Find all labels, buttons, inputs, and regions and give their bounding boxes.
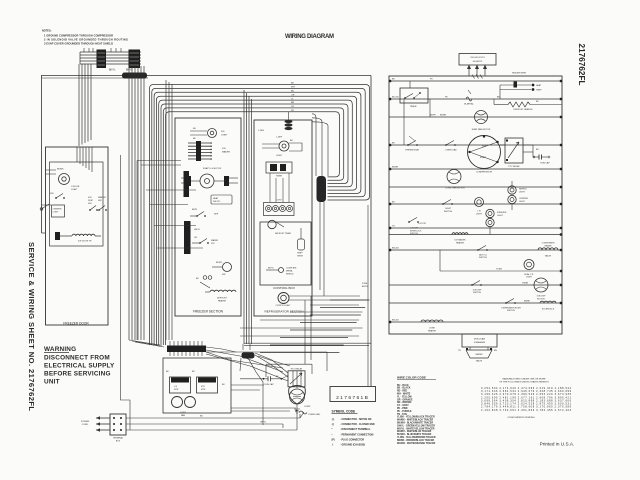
svg-text:OVERLOAD: OVERLOAD: [445, 149, 457, 152]
svg-text:GN/YL: GN/YL: [194, 229, 201, 231]
svg-text:DISP: DISP: [88, 200, 94, 202]
svg-text:CRISPER: CRISPER: [53, 209, 62, 211]
svg-text:3 EVAP COVER GROUNDED THROUGH: 3 EVAP COVER GROUNDED THROUGH HEAT SHIEL…: [44, 41, 113, 45]
svg-text:BI MTL: BI MTL: [216, 262, 224, 264]
svg-text:GN/YL: GN/YL: [260, 422, 267, 424]
svg-text:UNIT: UNIT: [44, 378, 60, 385]
svg-text:L/DOOR: L/DOOR: [71, 186, 80, 188]
svg-text:YL/BK - YELLOW/BLACK TRACER: YL/BK - YELLOW/BLACK TRACER: [397, 416, 435, 419]
svg-text:YL/BN - YELLOW/BROWN TRACER: YL/BN - YELLOW/BROWN TRACER: [397, 436, 436, 439]
svg-text:- PLUG CONNECTOR: - PLUG CONNECTOR: [340, 438, 364, 441]
svg-text:SWITCH: SWITCH: [473, 292, 481, 294]
svg-text:L-DOOR: L-DOOR: [410, 228, 418, 230]
svg-text:ICE DISP: ICE DISP: [473, 289, 482, 291]
svg-text:BK/PK: BK/PK: [430, 115, 437, 117]
svg-text:MODULAR: MODULAR: [474, 338, 485, 341]
svg-text:SWITCH: SWITCH: [507, 310, 515, 312]
svg-text:BEFORE SERVICING: BEFORE SERVICING: [44, 370, 111, 377]
svg-text:CORD: CORD: [82, 424, 89, 426]
svg-text:LIGHT: LIGHT: [526, 277, 533, 279]
svg-text:LIGHT: LIGHT: [497, 215, 504, 217]
svg-text:BN-250: BN-250: [392, 320, 400, 322]
svg-text:SOLENOID-S: SOLENOID-S: [542, 309, 555, 311]
svg-text:RD - RED: RD - RED: [397, 391, 408, 393]
svg-text:BK - BLACK: BK - BLACK: [397, 387, 411, 390]
svg-text:ZONE: ZONE: [429, 328, 435, 330]
svg-text:SWITCH: SWITCH: [479, 257, 487, 259]
svg-text:ZONE: ZONE: [362, 283, 368, 285]
svg-text:BK-250: BK-250: [392, 97, 400, 99]
svg-text:PTC RELAY: PTC RELAY: [291, 367, 303, 370]
svg-text:TERMINAL: TERMINAL: [113, 437, 124, 440]
svg-text:RUN CAP: RUN CAP: [540, 162, 550, 165]
svg-text:- GROUND (CHASSIS): - GROUND (CHASSIS): [340, 444, 365, 447]
svg-text:GY: GY: [291, 106, 295, 108]
svg-text:TIMER: TIMER: [276, 176, 283, 178]
svg-text:POWER: POWER: [81, 421, 90, 423]
svg-text:- CONNECTOR - SETON ON: - CONNECTOR - SETON ON: [340, 418, 372, 421]
svg-text:GN/YL - GREEN/YELLOW TRACER: GN/YL - GREEN/YELLOW TRACER: [397, 424, 435, 427]
svg-text:MTR: MTR: [174, 389, 179, 391]
svg-text:2176762FL: 2176762FL: [577, 44, 586, 86]
svg-text:WH/BK - WHITE/BLACK TRACER: WH/BK - WHITE/BLACK TRACER: [397, 419, 433, 422]
svg-text:BU: BU: [193, 128, 196, 130]
svg-text:COMP: COMP: [304, 406, 311, 408]
svg-text:'EVAP' D & MOTOR: 'EVAP' D & MOTOR: [203, 167, 222, 170]
svg-text:BR: BR: [291, 102, 294, 104]
svg-text:DEF: DEF: [214, 214, 219, 216]
svg-text:ICE: ICE: [222, 148, 226, 150]
svg-text:BK/YL: BK/YL: [109, 70, 116, 72]
svg-text:TN - TAN: TN - TAN: [397, 413, 407, 416]
svg-text:WIRE COLOR CODE: WIRE COLOR CODE: [397, 376, 426, 380]
svg-text:Printed in U.S.A.: Printed in U.S.A.: [540, 442, 575, 447]
svg-text:COMP BIN: COMP BIN: [286, 268, 297, 270]
svg-text:F/S: F/S: [221, 131, 225, 133]
svg-text:DUAL CTL: DUAL CTL: [524, 273, 534, 276]
svg-text:MANUFACTURED UNDER ONE OR: MANUFACTURED UNDER ONE OR MORE: [502, 378, 546, 381]
svg-text:1 GROUND COMPRESSOR THROUGH C: 1 GROUND COMPRESSOR THROUGH COMPRESSOR: [44, 33, 113, 37]
svg-text:PK - PINK: PK - PINK: [397, 408, 408, 410]
svg-text:VALVE: VALVE: [545, 255, 552, 258]
svg-text:(P): (P): [332, 438, 335, 441]
svg-text:METAL: METAL: [286, 270, 294, 273]
svg-text:WATER: WATER: [211, 239, 219, 242]
svg-text:LIGHT: LIGHT: [276, 155, 283, 157]
svg-text:BN/BK: BN/BK: [524, 301, 531, 303]
svg-text:LIGHT: LIGHT: [476, 214, 483, 216]
svg-text:PTC RELAY: PTC RELAY: [508, 165, 520, 168]
svg-text:LIGHT: LIGHT: [71, 189, 78, 191]
svg-text:YL - YELLOW: YL - YELLOW: [397, 396, 413, 398]
svg-text:WH: WH: [291, 87, 295, 89]
svg-text:BI-METAL: BI-METAL: [464, 103, 474, 106]
svg-text:ICEMAKER: ICEMAKER: [474, 341, 486, 344]
svg-text:TERM: TERM: [297, 256, 303, 258]
svg-text:WH - WHITE: WH - WHITE: [397, 394, 411, 396]
svg-text:BOX: BOX: [116, 440, 121, 442]
svg-text:ICE DOOR HT: ICE DOOR HT: [78, 241, 92, 243]
svg-text:ICE DISP: ICE DISP: [537, 296, 546, 298]
svg-text:TEMP: TEMP: [536, 90, 542, 92]
svg-text:BK/BN: BK/BN: [392, 167, 399, 169]
svg-text:-)(: -)(: [332, 423, 335, 426]
svg-text:THERMOSTAT: THERMOSTAT: [405, 149, 420, 152]
svg-text:ELECTRICAL SUPPLY: ELECTRICAL SUPPLY: [44, 362, 115, 369]
svg-text:GY - GRAY: GY - GRAY: [397, 404, 409, 407]
svg-text:MOTOR: MOTOR: [537, 298, 545, 300]
svg-text:CONT: CONT: [53, 212, 59, 214]
svg-text:220-240 VOLTS: 220-240 VOLTS: [470, 57, 485, 59]
svg-text:L-DOOR: L-DOOR: [418, 223, 426, 225]
svg-text:WH/OR - WHITE/ORANGE TRACER: WH/OR - WHITE/ORANGE TRACER: [397, 442, 436, 445]
svg-text:LIGHT: LIGHT: [519, 201, 526, 203]
svg-text:WH/BU - WHITE/BLUE TRACER: WH/BU - WHITE/BLUE TRACER: [397, 430, 432, 433]
svg-text:RUN: RUN: [482, 146, 487, 148]
svg-text:LIGHT: LIGHT: [221, 134, 228, 136]
svg-text:ICE: ICE: [88, 197, 92, 199]
svg-text:COMPRESSOR: COMPRESSOR: [476, 172, 492, 174]
svg-text:FREEZER SECTION: FREEZER SECTION: [193, 310, 224, 314]
svg-text:OTHER PATENTS PENDING: OTHER PATENTS PENDING: [507, 416, 535, 419]
svg-text:MTR: MTR: [201, 389, 206, 391]
svg-text:CONT: CONT: [180, 412, 187, 414]
svg-text:- CONNECTOR - CLOSED END: - CONNECTOR - CLOSED END: [340, 423, 375, 426]
svg-text:SW: SW: [222, 274, 225, 276]
svg-text:OF THE FOLLOWING UNITED ST: OF THE FOLLOWING UNITED STATES PATENTS: [499, 380, 549, 383]
svg-text:60 HERTZ: 60 HERTZ: [473, 61, 483, 63]
svg-text:HEAT: HEAT: [213, 197, 219, 200]
svg-text:OR: OR: [291, 94, 295, 96]
svg-text:SWITCH: SWITCH: [410, 233, 418, 235]
svg-text:L-DEF: L-DEF: [258, 130, 265, 132]
svg-text:SHIELD: SHIELD: [286, 274, 294, 276]
svg-text:OVERLOAD: OVERLOAD: [308, 413, 321, 416]
svg-text:TEMP: TEMP: [297, 253, 303, 255]
svg-text:-)|-: -)|-: [332, 418, 335, 421]
svg-text:DISPENSER/CRUSH: DISPENSER/CRUSH: [501, 307, 521, 309]
svg-text:HEATER: HEATER: [218, 300, 227, 303]
svg-text:M R: M R: [201, 386, 205, 388]
svg-text:REFR/G: REFR/G: [519, 189, 527, 191]
svg-text:TIMER: TIMER: [410, 106, 417, 108]
svg-text:BU/BK: BU/BK: [57, 169, 64, 171]
svg-text:- DISCONNECT TERMINAL: - DISCONNECT TERMINAL: [340, 428, 371, 431]
svg-text:FAN: FAN: [181, 414, 186, 417]
svg-text:MAKER: MAKER: [222, 150, 230, 153]
svg-text:OR: OR: [194, 237, 198, 239]
svg-text:WATER: WATER: [545, 244, 553, 247]
svg-text:NOTES:: NOTES:: [42, 30, 52, 33]
svg-text:DEFROST TIMER: DEFROST TIMER: [275, 233, 292, 235]
svg-text:CONTROL BOX: CONTROL BOX: [273, 286, 295, 290]
svg-text:OR - ORANGE: OR - ORANGE: [397, 398, 413, 401]
svg-text:HEATER: HEATER: [456, 241, 465, 244]
svg-text:HEAT: HEAT: [536, 84, 542, 87]
svg-text:BK/YL: BK/YL: [268, 268, 275, 270]
svg-text:2 IN SOLENOID VALVE GROUNDED: 2 IN SOLENOID VALVE GROUNDED THROUGH ROU…: [44, 37, 128, 41]
svg-text:YL/BN: YL/BN: [496, 269, 502, 271]
svg-text:SWITCH: SWITCH: [444, 211, 453, 213]
svg-text:LIGHT: LIGHT: [445, 208, 452, 210]
svg-text:RUN CAP: RUN CAP: [264, 383, 274, 386]
svg-text:CRISPER: CRISPER: [519, 198, 528, 200]
svg-text:CR'SP'R LIGHT: CR'SP'R LIGHT: [276, 305, 291, 307]
svg-text:CONT: CONT: [276, 200, 282, 202]
svg-text:WIRING DIAGRAM: WIRING DIAGRAM: [285, 34, 334, 40]
svg-text:L-DEF: L-DEF: [276, 137, 283, 139]
svg-text:BU: BU: [291, 91, 294, 93]
svg-text:WATER: WATER: [476, 353, 484, 356]
svg-text:2,162,848 3,762,691 3,391,833: 2,162,848 3,762,691 3,391,833 3,784,455 …: [481, 408, 572, 412]
svg-text:FREEZER DOOR: FREEZER DOOR: [63, 322, 89, 326]
svg-text:SERVICE & WIRING SHEET NO.: SERVICE & WIRING SHEET NO. 2176762FL: [27, 242, 36, 411]
svg-text:BN - BROWN: BN - BROWN: [397, 402, 412, 404]
svg-text:TN/BN: TN/BN: [522, 283, 529, 285]
svg-text:WATER: WATER: [98, 196, 106, 199]
svg-text:WARNING: WARNING: [44, 346, 76, 353]
svg-text:L N: L N: [477, 211, 481, 213]
svg-text:COND. FAN MOTOR: COND. FAN MOTOR: [445, 187, 465, 190]
svg-text:BK/BN: BK/BN: [440, 115, 447, 117]
svg-text:2 1 7 6 7 6 1 B: 2 1 7 6 7 6 1 B: [336, 395, 368, 401]
svg-text:BU/WH - BLUE/WHITE TRACER: BU/WH - BLUE/WHITE TRACER: [397, 433, 432, 436]
svg-text:SYMBOL CODE: SYMBOL CODE: [332, 410, 356, 414]
svg-text:BK/N: BK/N: [192, 209, 197, 211]
svg-text:DEFROST HEATER: DEFROST HEATER: [514, 108, 533, 111]
svg-text:HEATER: HEATER: [428, 329, 437, 332]
svg-text:REFRIGERATOR SECTION: REFRIGERATOR SECTION: [265, 310, 304, 314]
svg-text:INTERLOCK: INTERLOCK: [410, 230, 422, 232]
svg-text:BK/WH - BLACK/WHITE TRACER: BK/WH - BLACK/WHITE TRACER: [397, 422, 433, 425]
svg-text:ICE MAKER: ICE MAKER: [454, 239, 466, 242]
svg-text:CONDENSER: CONDENSER: [542, 243, 555, 245]
svg-text:HIDDEN WIRE: HIDDEN WIRE: [512, 73, 527, 75]
svg-text:BN/BK - BROWN/BLACK TRACER: BN/BK - BROWN/BLACK TRACER: [397, 439, 434, 442]
svg-text:BU - BLUE: BU - BLUE: [397, 385, 409, 387]
svg-text:EVAP. FAN MOTOR: EVAP. FAN MOTOR: [472, 128, 491, 131]
svg-text:FREEZER: FREEZER: [497, 212, 507, 214]
svg-text:AUTO &: AUTO &: [479, 253, 487, 256]
svg-text:PU - PURPLE: PU - PURPLE: [397, 411, 412, 413]
svg-text:BN-250: BN-250: [392, 248, 400, 250]
svg-text:VALVE: VALVE: [476, 360, 483, 363]
svg-text:- PERMANENT CONNECTION: - PERMANENT CONNECTION: [340, 433, 374, 436]
svg-text:START: START: [480, 156, 487, 159]
svg-text:BK/250: BK/250: [362, 286, 368, 288]
svg-text:LIGHT: LIGHT: [519, 192, 526, 194]
svg-text:SW-CTL: SW-CTL: [213, 201, 222, 203]
svg-text:WH/YL - WHITE/YELLOW TRACER: WH/YL - WHITE/YELLOW TRACER: [397, 427, 435, 430]
svg-text:*: *: [332, 428, 333, 431]
svg-text:DEFROST: DEFROST: [217, 298, 228, 300]
svg-text:DISCONNECT FROM: DISCONNECT FROM: [44, 354, 110, 361]
